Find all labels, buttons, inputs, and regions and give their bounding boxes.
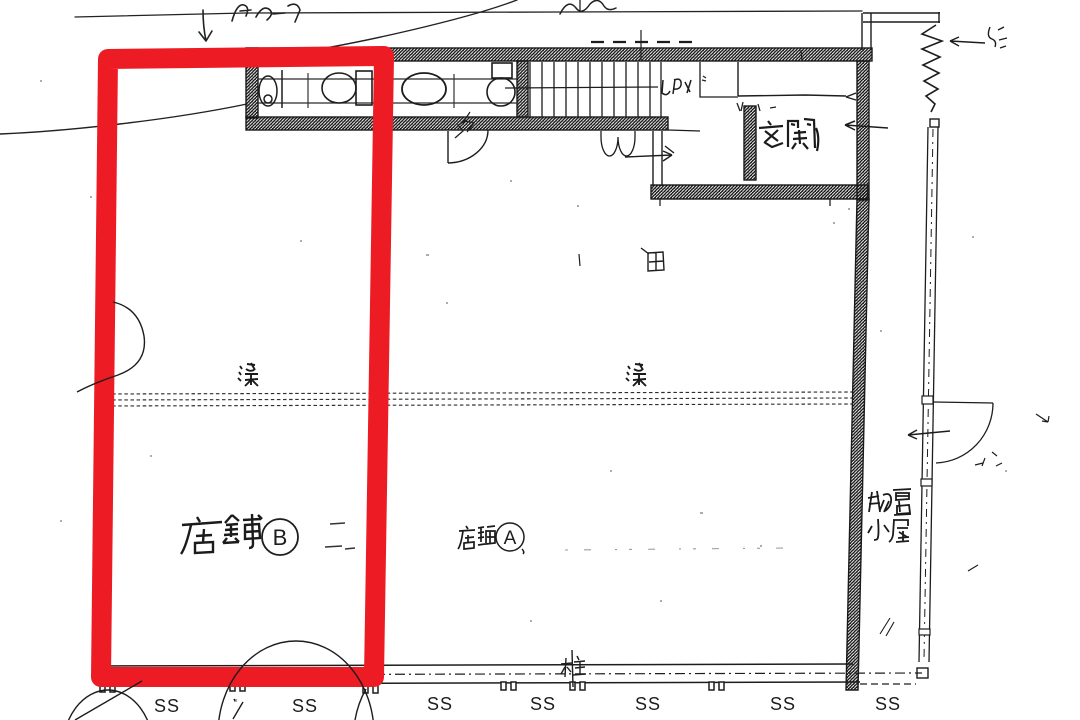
svg-text:SS: SS bbox=[154, 696, 180, 716]
svg-text:SS: SS bbox=[530, 694, 556, 714]
svg-text:SS: SS bbox=[770, 694, 796, 714]
svg-text:A: A bbox=[504, 528, 517, 549]
svg-text:B: B bbox=[273, 525, 288, 550]
svg-text:SS: SS bbox=[292, 696, 318, 716]
svg-text:SS: SS bbox=[635, 694, 661, 714]
svg-text:SS: SS bbox=[875, 694, 901, 714]
svg-text:SS: SS bbox=[427, 694, 453, 714]
